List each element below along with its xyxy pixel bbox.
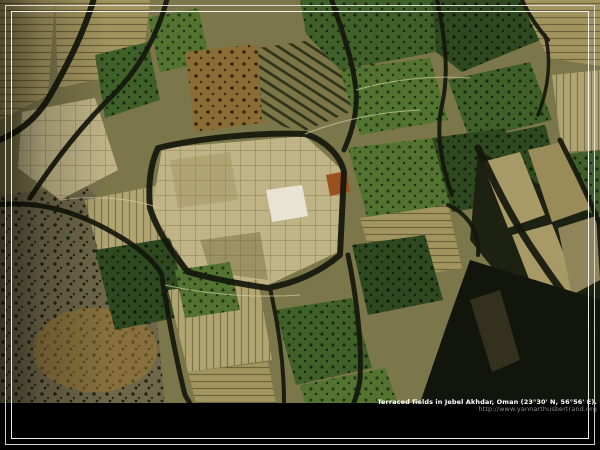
aerial-photo-illustration [0,0,600,403]
caption-block: Terraced fields in Jebel Akhdar, Oman (2… [377,399,597,413]
edge-shading [0,0,600,403]
photo-credit-url: http://www.yannarthusbertrand.org [377,406,597,413]
aerial-photo [0,0,600,403]
wallpaper: Terraced fields in Jebel Akhdar, Oman (2… [0,0,600,450]
